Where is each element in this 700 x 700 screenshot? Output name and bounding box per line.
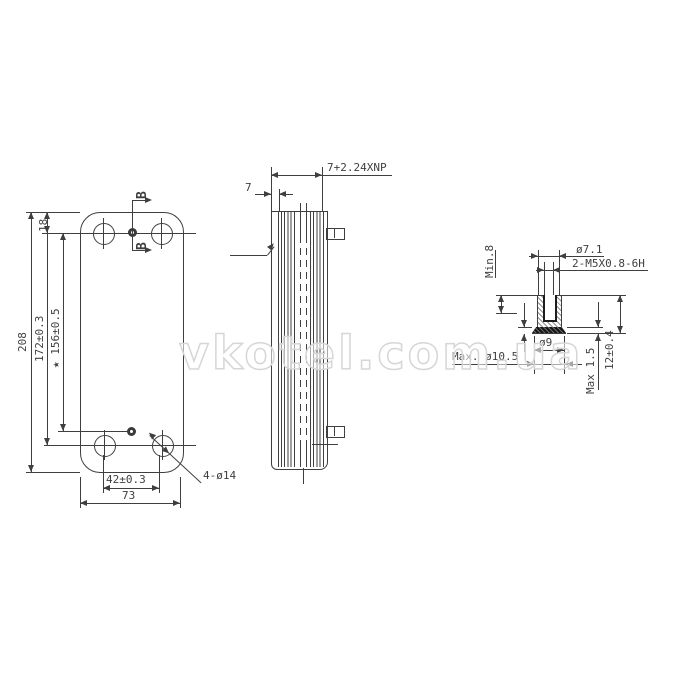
dimension-line — [63, 233, 64, 431]
dim-arrow — [264, 191, 271, 197]
dim-arrow — [279, 191, 286, 197]
break-line — [300, 203, 301, 236]
stud-side — [326, 228, 345, 240]
dim-total-height: 208 — [17, 332, 29, 352]
dim-arrow — [595, 334, 601, 341]
centerline — [44, 445, 196, 446]
dim-stack-formula: 7+2.24XNP — [327, 162, 387, 174]
stud-side — [326, 426, 345, 438]
break-line — [306, 203, 307, 236]
dim-total-width: 73 — [122, 490, 135, 502]
dimension-line — [31, 212, 32, 472]
dim-arrow — [617, 295, 623, 302]
dim-hole-spacing: 42±0.3 — [106, 474, 146, 486]
stud-flange-line — [334, 426, 335, 436]
section-arm — [132, 250, 145, 251]
extension-line — [496, 313, 517, 314]
dim-top-offset: 18 — [38, 219, 50, 232]
dimension-line — [271, 175, 392, 176]
dim-arrow — [559, 253, 566, 259]
extension-line — [26, 212, 80, 213]
break-line — [300, 442, 301, 467]
section-cut-line — [132, 200, 133, 250]
dim-stud-centers: ★ 156±0.5 — [50, 308, 62, 368]
section-label-b-top: B — [135, 191, 150, 199]
dim-arrow — [60, 233, 66, 240]
hole-callout: 4-ø14 — [203, 470, 236, 482]
dim-arrow — [537, 267, 544, 273]
section-label-b-bottom: B — [135, 242, 150, 250]
dim-arrow — [60, 424, 66, 431]
dim-arrow — [498, 306, 504, 313]
dim-arrow — [498, 295, 504, 302]
watermark-text: vkotel.com.ua — [179, 326, 583, 380]
dim-thread-depth: Min.8 — [484, 245, 496, 278]
dim-arrow — [553, 267, 560, 273]
dim-arrow — [173, 500, 180, 506]
centerline — [58, 431, 134, 432]
leader-line — [230, 255, 267, 256]
centerline — [312, 444, 338, 445]
dimension-line — [80, 503, 180, 504]
dim-arrow — [315, 172, 322, 178]
thread-callout: 2-M5X0.8-6H — [572, 258, 645, 270]
threaded-bore — [543, 295, 557, 322]
extension-line — [26, 472, 80, 473]
dim-arrow — [80, 500, 87, 506]
dim-end-plate: 7 — [245, 182, 252, 194]
extension-line — [180, 477, 181, 508]
extension-line — [159, 455, 160, 493]
extension-line — [322, 167, 323, 211]
dim-arrow — [28, 465, 34, 472]
dim-boss-length: 12±0.4 — [604, 330, 616, 370]
dim-arrow — [531, 253, 538, 259]
port-hole — [94, 435, 116, 457]
stud-flange-line — [334, 228, 335, 238]
stud — [127, 427, 136, 436]
section-arm — [132, 200, 145, 201]
dim-arrow — [617, 326, 623, 333]
dim-arrow — [44, 438, 50, 445]
break-line — [306, 442, 307, 467]
dim-port-centers: 172±0.3 — [34, 316, 46, 362]
dim-arrow — [28, 212, 34, 219]
centerline — [303, 468, 304, 484]
dimension-line — [598, 334, 599, 390]
port-hole — [93, 223, 115, 245]
dim-arrow — [152, 485, 159, 491]
extension-line — [544, 262, 545, 295]
port-hole — [151, 223, 173, 245]
drawing-canvas: B B 208 18 172±0.3 ★ 156±0.5 42±0.3 — [0, 0, 700, 700]
dim-boss-diameter: ø7.1 — [576, 244, 603, 256]
dim-arrow — [595, 320, 601, 327]
dim-flange-thickness: Max 1.5 — [585, 348, 597, 394]
dimension-line — [47, 212, 48, 445]
dim-arrow — [271, 172, 278, 178]
